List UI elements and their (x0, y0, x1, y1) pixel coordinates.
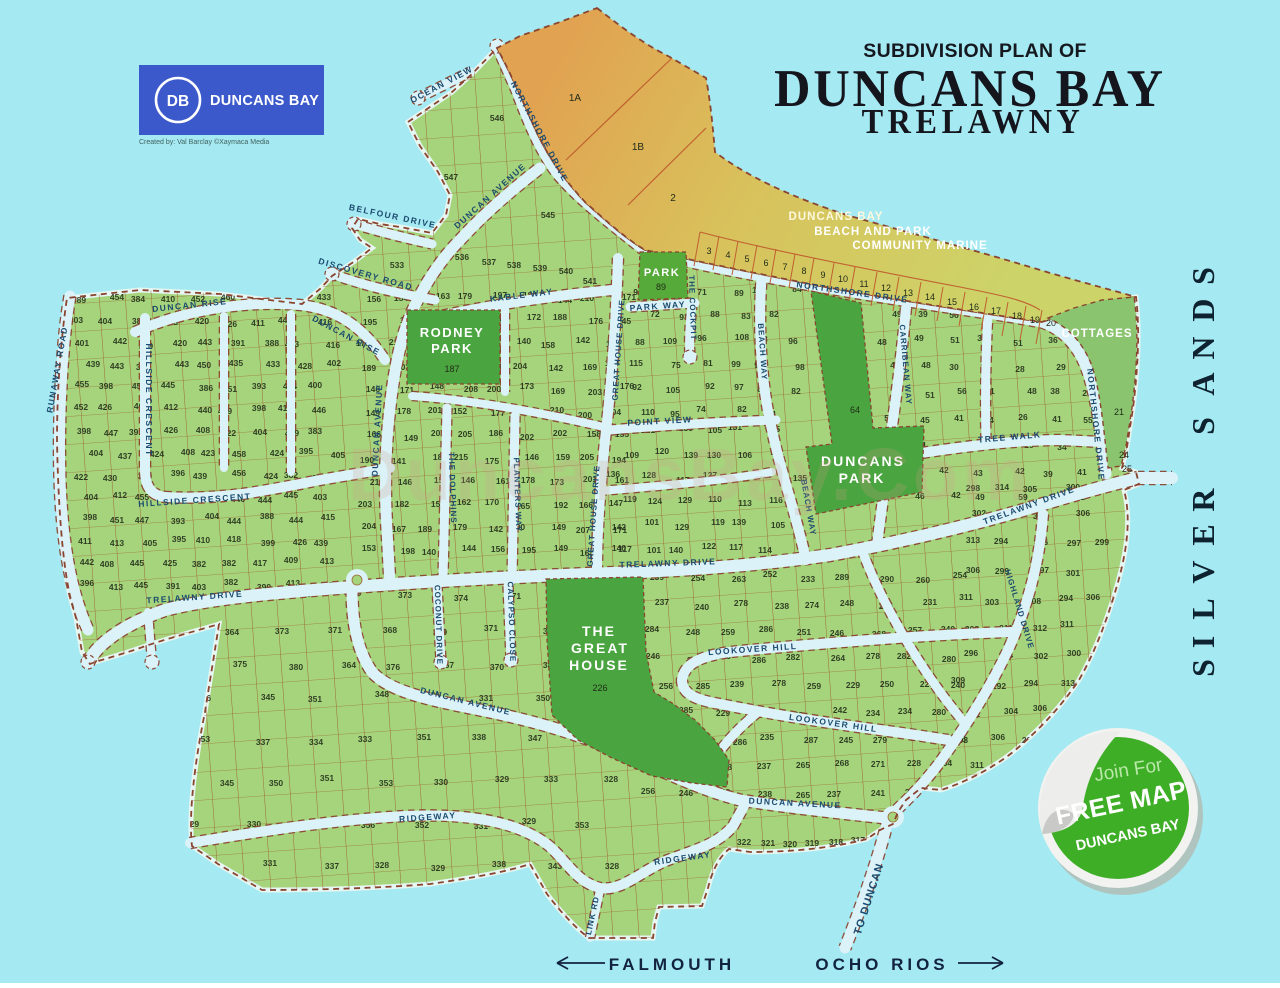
svg-text:328: 328 (604, 774, 618, 784)
svg-text:386: 386 (199, 383, 213, 393)
svg-text:122: 122 (702, 541, 716, 551)
svg-text:38: 38 (1050, 386, 1060, 396)
svg-text:24: 24 (1119, 450, 1129, 460)
svg-text:417: 417 (253, 558, 267, 568)
svg-text:301: 301 (1066, 568, 1080, 578)
svg-text:237: 237 (655, 597, 669, 607)
svg-text:286: 286 (759, 624, 773, 634)
svg-text:14: 14 (925, 292, 935, 302)
svg-text:E: E (1185, 524, 1221, 545)
svg-text:144: 144 (462, 543, 476, 553)
svg-text:26: 26 (1018, 412, 1028, 422)
svg-text:108: 108 (735, 332, 749, 342)
svg-text:21: 21 (1114, 407, 1124, 417)
svg-text:48: 48 (1027, 386, 1037, 396)
svg-text:51: 51 (1013, 338, 1023, 348)
svg-text:99: 99 (731, 359, 741, 369)
svg-text:228: 228 (907, 758, 921, 768)
svg-text:83: 83 (741, 311, 751, 321)
svg-text:188: 188 (553, 312, 567, 322)
svg-text:440: 440 (198, 405, 212, 415)
svg-text:HOUSE: HOUSE (569, 657, 629, 673)
svg-text:49: 49 (914, 333, 924, 343)
svg-text:412: 412 (113, 490, 127, 500)
svg-text:426: 426 (293, 537, 307, 547)
svg-text:88: 88 (710, 309, 720, 319)
svg-text:208: 208 (464, 384, 478, 394)
svg-text:140: 140 (422, 547, 436, 557)
svg-text:433: 433 (266, 359, 280, 369)
svg-text:COTTAGES: COTTAGES (1061, 328, 1132, 340)
svg-text:R: R (1185, 488, 1221, 512)
svg-text:18: 18 (1012, 311, 1022, 321)
svg-text:447: 447 (104, 428, 118, 438)
svg-text:445: 445 (130, 558, 144, 568)
svg-text:71: 71 (697, 287, 707, 297)
svg-text:299: 299 (1095, 537, 1109, 547)
svg-text:17: 17 (991, 306, 1001, 316)
svg-text:48: 48 (877, 337, 887, 347)
svg-text:1A: 1A (569, 93, 582, 104)
svg-text:233: 233 (801, 574, 815, 584)
svg-text:286: 286 (752, 655, 766, 665)
svg-text:420: 420 (173, 338, 187, 348)
svg-text:V: V (1185, 560, 1221, 583)
svg-text:4: 4 (725, 250, 730, 260)
svg-text:306: 306 (966, 565, 980, 575)
svg-text:412: 412 (164, 402, 178, 412)
svg-text:306: 306 (1076, 508, 1090, 518)
svg-text:426: 426 (164, 425, 178, 435)
svg-text:204: 204 (513, 361, 527, 371)
svg-text:97: 97 (734, 382, 744, 392)
svg-text:413: 413 (109, 582, 123, 592)
svg-text:404: 404 (253, 427, 267, 437)
svg-text:237: 237 (827, 789, 841, 799)
svg-text:408: 408 (181, 447, 195, 457)
svg-text:458: 458 (232, 449, 246, 459)
svg-text:396: 396 (171, 468, 185, 478)
svg-text:242: 242 (833, 705, 847, 715)
svg-text:117: 117 (729, 542, 743, 552)
svg-text:245: 245 (839, 735, 853, 745)
svg-text:1B: 1B (632, 142, 645, 153)
svg-text:241: 241 (871, 788, 885, 798)
svg-text:433: 433 (317, 292, 331, 302)
svg-text:259: 259 (807, 681, 821, 691)
svg-text:306: 306 (1033, 703, 1047, 713)
svg-text:420: 420 (195, 316, 209, 326)
svg-text:279: 279 (873, 735, 887, 745)
svg-text:423: 423 (201, 448, 215, 458)
svg-text:BEACH AND PARK: BEACH AND PARK (814, 226, 932, 238)
svg-text:345: 345 (261, 692, 275, 702)
svg-text:410: 410 (196, 535, 210, 545)
svg-text:41: 41 (1052, 414, 1062, 424)
svg-text:51: 51 (950, 335, 960, 345)
svg-text:19: 19 (1030, 315, 1040, 325)
svg-text:364: 364 (342, 660, 356, 670)
svg-text:391: 391 (166, 581, 180, 591)
svg-text:444: 444 (289, 515, 303, 525)
svg-text:234: 234 (898, 706, 912, 716)
svg-text:140: 140 (669, 545, 683, 555)
svg-text:300: 300 (1067, 648, 1081, 658)
svg-text:189: 189 (418, 524, 432, 534)
svg-text:29: 29 (1056, 362, 1066, 372)
svg-text:408: 408 (196, 425, 210, 435)
svg-text:351: 351 (308, 694, 322, 704)
svg-text:533: 533 (390, 260, 404, 270)
svg-text:74: 74 (696, 404, 706, 414)
svg-text:380: 380 (289, 662, 303, 672)
svg-text:51: 51 (925, 390, 935, 400)
svg-text:RODNEY: RODNEY (420, 325, 485, 340)
svg-text:403: 403 (313, 492, 327, 502)
svg-text:D: D (1185, 298, 1221, 321)
svg-text:169: 169 (551, 386, 565, 396)
svg-text:337: 337 (325, 861, 339, 871)
svg-text:169: 169 (583, 362, 597, 372)
svg-text:328: 328 (375, 860, 389, 870)
svg-text:252: 252 (763, 569, 777, 579)
svg-text:319: 319 (805, 838, 819, 848)
svg-text:443: 443 (198, 337, 212, 347)
svg-text:142: 142 (576, 335, 590, 345)
svg-text:DUNCANS BAY: DUNCANS BAY (789, 211, 884, 223)
svg-text:329: 329 (495, 774, 509, 784)
svg-text:I: I (1185, 636, 1221, 648)
svg-text:75: 75 (671, 360, 681, 370)
svg-text:313: 313 (966, 535, 980, 545)
svg-text:198: 198 (401, 546, 415, 556)
svg-text:229: 229 (846, 680, 860, 690)
svg-text:153: 153 (362, 543, 376, 553)
svg-text:330: 330 (434, 777, 448, 787)
svg-text:260: 260 (916, 575, 930, 585)
svg-text:393: 393 (171, 516, 185, 526)
svg-text:139: 139 (732, 517, 746, 527)
svg-text:540: 540 (559, 266, 573, 276)
svg-text:294: 294 (1059, 593, 1073, 603)
svg-text:25: 25 (1122, 464, 1132, 474)
svg-text:238: 238 (775, 601, 789, 611)
svg-text:370: 370 (490, 662, 504, 672)
svg-text:351: 351 (320, 773, 334, 783)
svg-text:312: 312 (1033, 623, 1047, 633)
svg-text:A: A (1185, 372, 1221, 395)
svg-text:413: 413 (320, 556, 334, 566)
svg-text:320: 320 (783, 839, 797, 849)
svg-text:158: 158 (541, 340, 555, 350)
svg-text:411: 411 (251, 318, 265, 328)
svg-text:149: 149 (554, 543, 568, 553)
svg-text:371: 371 (328, 625, 342, 635)
svg-text:6: 6 (763, 258, 768, 268)
svg-text:178: 178 (397, 406, 411, 416)
svg-text:172: 172 (527, 312, 541, 322)
svg-text:404: 404 (98, 316, 112, 326)
svg-text:398: 398 (83, 512, 97, 522)
svg-text:311: 311 (970, 760, 984, 770)
svg-text:304: 304 (1004, 706, 1018, 716)
svg-text:152: 152 (453, 406, 467, 416)
svg-text:117: 117 (618, 544, 632, 554)
svg-text:167: 167 (392, 524, 406, 534)
svg-text:395: 395 (172, 534, 186, 544)
svg-text:439: 439 (314, 538, 328, 548)
svg-text:452: 452 (74, 402, 88, 412)
svg-text:426: 426 (98, 402, 112, 412)
svg-text:115: 115 (629, 358, 643, 368)
svg-text:411: 411 (78, 536, 92, 546)
svg-text:9: 9 (820, 270, 825, 280)
svg-text:404: 404 (84, 492, 98, 502)
svg-text:428: 428 (298, 361, 312, 371)
svg-text:82: 82 (769, 309, 779, 319)
svg-text:348: 348 (375, 689, 389, 699)
svg-text:N: N (1185, 336, 1221, 359)
svg-text:248: 248 (840, 598, 854, 608)
svg-text:HILLSIDE CRESCENT: HILLSIDE CRESCENT (144, 343, 154, 456)
svg-text:418: 418 (227, 534, 241, 544)
svg-text:303: 303 (985, 597, 999, 607)
svg-text:109: 109 (663, 336, 677, 346)
svg-text:536: 536 (455, 252, 469, 262)
svg-text:398: 398 (99, 381, 113, 391)
svg-text:338: 338 (492, 859, 506, 869)
svg-text:203: 203 (588, 387, 602, 397)
svg-text:405: 405 (143, 538, 157, 548)
svg-text:425: 425 (163, 558, 177, 568)
svg-text:36: 36 (1048, 335, 1058, 345)
svg-text:382: 382 (222, 558, 236, 568)
svg-text:398: 398 (77, 426, 91, 436)
svg-text:285: 285 (696, 681, 710, 691)
svg-text:56: 56 (957, 386, 967, 396)
svg-text:353: 353 (379, 778, 393, 788)
svg-text:278: 278 (734, 598, 748, 608)
svg-text:16: 16 (969, 302, 979, 312)
svg-text:250: 250 (880, 679, 894, 689)
svg-text:195: 195 (522, 545, 536, 555)
svg-text:105: 105 (771, 520, 785, 530)
svg-text:3: 3 (706, 246, 711, 256)
svg-text:329: 329 (431, 863, 445, 873)
svg-text:271: 271 (871, 759, 885, 769)
svg-text:129: 129 (675, 522, 689, 532)
svg-text:345: 345 (220, 778, 234, 788)
svg-text:81: 81 (703, 358, 713, 368)
svg-text:451: 451 (110, 515, 124, 525)
svg-text:240: 240 (695, 602, 709, 612)
svg-text:430: 430 (103, 473, 117, 483)
svg-text:382: 382 (224, 577, 238, 587)
svg-text:347: 347 (528, 733, 542, 743)
svg-text:7: 7 (782, 262, 787, 272)
svg-text:176: 176 (589, 316, 603, 326)
svg-text:289: 289 (835, 572, 849, 582)
svg-text:537: 537 (482, 257, 496, 267)
svg-text:445: 445 (161, 380, 175, 390)
svg-text:DUNCANS BAY: DUNCANS BAY (210, 93, 319, 109)
svg-text:263: 263 (732, 574, 746, 584)
svg-text:402: 402 (327, 358, 341, 368)
svg-text:8: 8 (801, 266, 806, 276)
svg-text:437: 437 (118, 451, 132, 461)
svg-text:405: 405 (331, 450, 345, 460)
svg-text:399: 399 (261, 538, 275, 548)
svg-text:280: 280 (942, 654, 956, 664)
svg-text:382: 382 (192, 559, 206, 569)
svg-text:30: 30 (949, 362, 959, 372)
svg-text:439: 439 (193, 471, 207, 481)
svg-text:OCHO RIOS: OCHO RIOS (815, 955, 948, 974)
svg-text:GREAT: GREAT (571, 640, 629, 656)
svg-text:306: 306 (991, 732, 1005, 742)
svg-text:371: 371 (484, 623, 498, 633)
svg-text:256: 256 (659, 681, 673, 691)
svg-text:234: 234 (866, 708, 880, 718)
svg-text:204: 204 (362, 521, 376, 531)
svg-text:278: 278 (772, 678, 786, 688)
svg-text:265: 265 (796, 760, 810, 770)
svg-text:338: 338 (472, 732, 486, 742)
svg-text:416: 416 (326, 340, 340, 350)
svg-text:311: 311 (1060, 619, 1074, 629)
svg-text:235: 235 (760, 732, 774, 742)
svg-text:179: 179 (458, 291, 472, 301)
svg-text:388: 388 (265, 338, 279, 348)
svg-text:309: 309 (951, 675, 965, 685)
svg-text:248: 248 (686, 627, 700, 637)
svg-text:101: 101 (645, 517, 659, 527)
svg-text:393: 393 (252, 381, 266, 391)
svg-text:447: 447 (135, 515, 149, 525)
svg-text:450: 450 (197, 360, 211, 370)
svg-text:539: 539 (533, 263, 547, 273)
svg-text:149: 149 (552, 522, 566, 532)
svg-text:142: 142 (489, 524, 503, 534)
svg-text:401: 401 (75, 338, 89, 348)
svg-text:142: 142 (549, 363, 563, 373)
svg-text:446: 446 (312, 405, 326, 415)
svg-text:311: 311 (959, 592, 973, 602)
svg-text:278: 278 (866, 651, 880, 661)
svg-text:195: 195 (363, 317, 377, 327)
svg-text:201: 201 (428, 405, 442, 415)
svg-text:424: 424 (264, 471, 278, 481)
svg-text:373: 373 (398, 590, 412, 600)
svg-text:88: 88 (635, 337, 645, 347)
svg-text:353: 353 (575, 820, 589, 830)
svg-text:41: 41 (954, 413, 964, 423)
svg-text:45: 45 (920, 415, 930, 425)
svg-text:226: 226 (592, 683, 607, 693)
svg-text:541: 541 (583, 276, 597, 286)
svg-text:82: 82 (737, 404, 747, 414)
svg-text:375: 375 (233, 659, 247, 669)
svg-text:334: 334 (309, 737, 323, 747)
svg-text:408: 408 (100, 559, 114, 569)
svg-text:290: 290 (880, 574, 894, 584)
svg-text:89: 89 (734, 288, 744, 298)
svg-text:Created by: Val Barclay ©Xayma: Created by: Val Barclay ©Xaymaca Media (139, 138, 269, 146)
svg-text:439: 439 (86, 359, 100, 369)
svg-text:284: 284 (645, 624, 659, 634)
svg-text:333: 333 (358, 734, 372, 744)
svg-text:296: 296 (964, 648, 978, 658)
svg-text:350: 350 (536, 693, 550, 703)
svg-text:333: 333 (544, 774, 558, 784)
svg-text:442: 442 (113, 336, 127, 346)
svg-text:S: S (1185, 267, 1221, 285)
svg-text:443: 443 (110, 361, 124, 371)
svg-text:251: 251 (797, 627, 811, 637)
svg-text:376: 376 (386, 662, 400, 672)
svg-text:173: 173 (520, 381, 534, 391)
svg-text:294: 294 (1024, 678, 1038, 688)
svg-text:PARK: PARK (644, 267, 680, 279)
svg-text:413: 413 (110, 538, 124, 548)
svg-text:48: 48 (921, 360, 931, 370)
svg-text:DB: DB (167, 93, 189, 110)
svg-text:455: 455 (75, 379, 89, 389)
svg-text:350: 350 (269, 778, 283, 788)
svg-text:287: 287 (804, 735, 818, 745)
svg-text:TRELAWNY: TRELAWNY (862, 103, 1085, 142)
svg-text:396: 396 (80, 578, 94, 588)
svg-text:435: 435 (229, 358, 243, 368)
svg-text:415: 415 (321, 512, 335, 522)
svg-text:274: 274 (805, 600, 819, 610)
svg-text:259: 259 (721, 627, 735, 637)
svg-text:10: 10 (838, 274, 848, 284)
svg-text:404: 404 (89, 448, 103, 458)
svg-text:92: 92 (705, 381, 715, 391)
svg-text:L: L (1185, 598, 1221, 619)
svg-text:82: 82 (791, 386, 801, 396)
svg-text:200: 200 (487, 384, 501, 394)
svg-text:422: 422 (74, 472, 88, 482)
svg-text:187: 187 (444, 364, 459, 374)
svg-text:2: 2 (670, 193, 676, 204)
svg-text:424: 424 (270, 448, 284, 458)
svg-text:246: 246 (646, 651, 660, 661)
svg-text:444: 444 (227, 516, 241, 526)
svg-text:DuncansBay.Com: DuncansBay.Com (348, 433, 1032, 516)
svg-text:328: 328 (605, 861, 619, 871)
svg-text:92: 92 (632, 382, 642, 392)
svg-text:SUBDIVISION PLAN OF: SUBDIVISION PLAN OF (863, 40, 1086, 62)
svg-text:391: 391 (231, 338, 245, 348)
svg-text:119: 119 (711, 517, 725, 527)
svg-text:101: 101 (647, 545, 661, 555)
svg-text:443: 443 (175, 359, 189, 369)
svg-text:268: 268 (835, 758, 849, 768)
svg-text:395: 395 (299, 446, 313, 456)
svg-text:383: 383 (308, 426, 322, 436)
svg-text:142: 142 (612, 522, 626, 532)
svg-text:313: 313 (1061, 678, 1075, 688)
svg-text:373: 373 (275, 626, 289, 636)
svg-text:280: 280 (932, 707, 946, 717)
svg-text:445: 445 (134, 580, 148, 590)
svg-text:231: 231 (923, 597, 937, 607)
svg-text:302: 302 (1034, 651, 1048, 661)
svg-text:64: 64 (850, 405, 860, 415)
svg-text:5: 5 (744, 254, 749, 264)
